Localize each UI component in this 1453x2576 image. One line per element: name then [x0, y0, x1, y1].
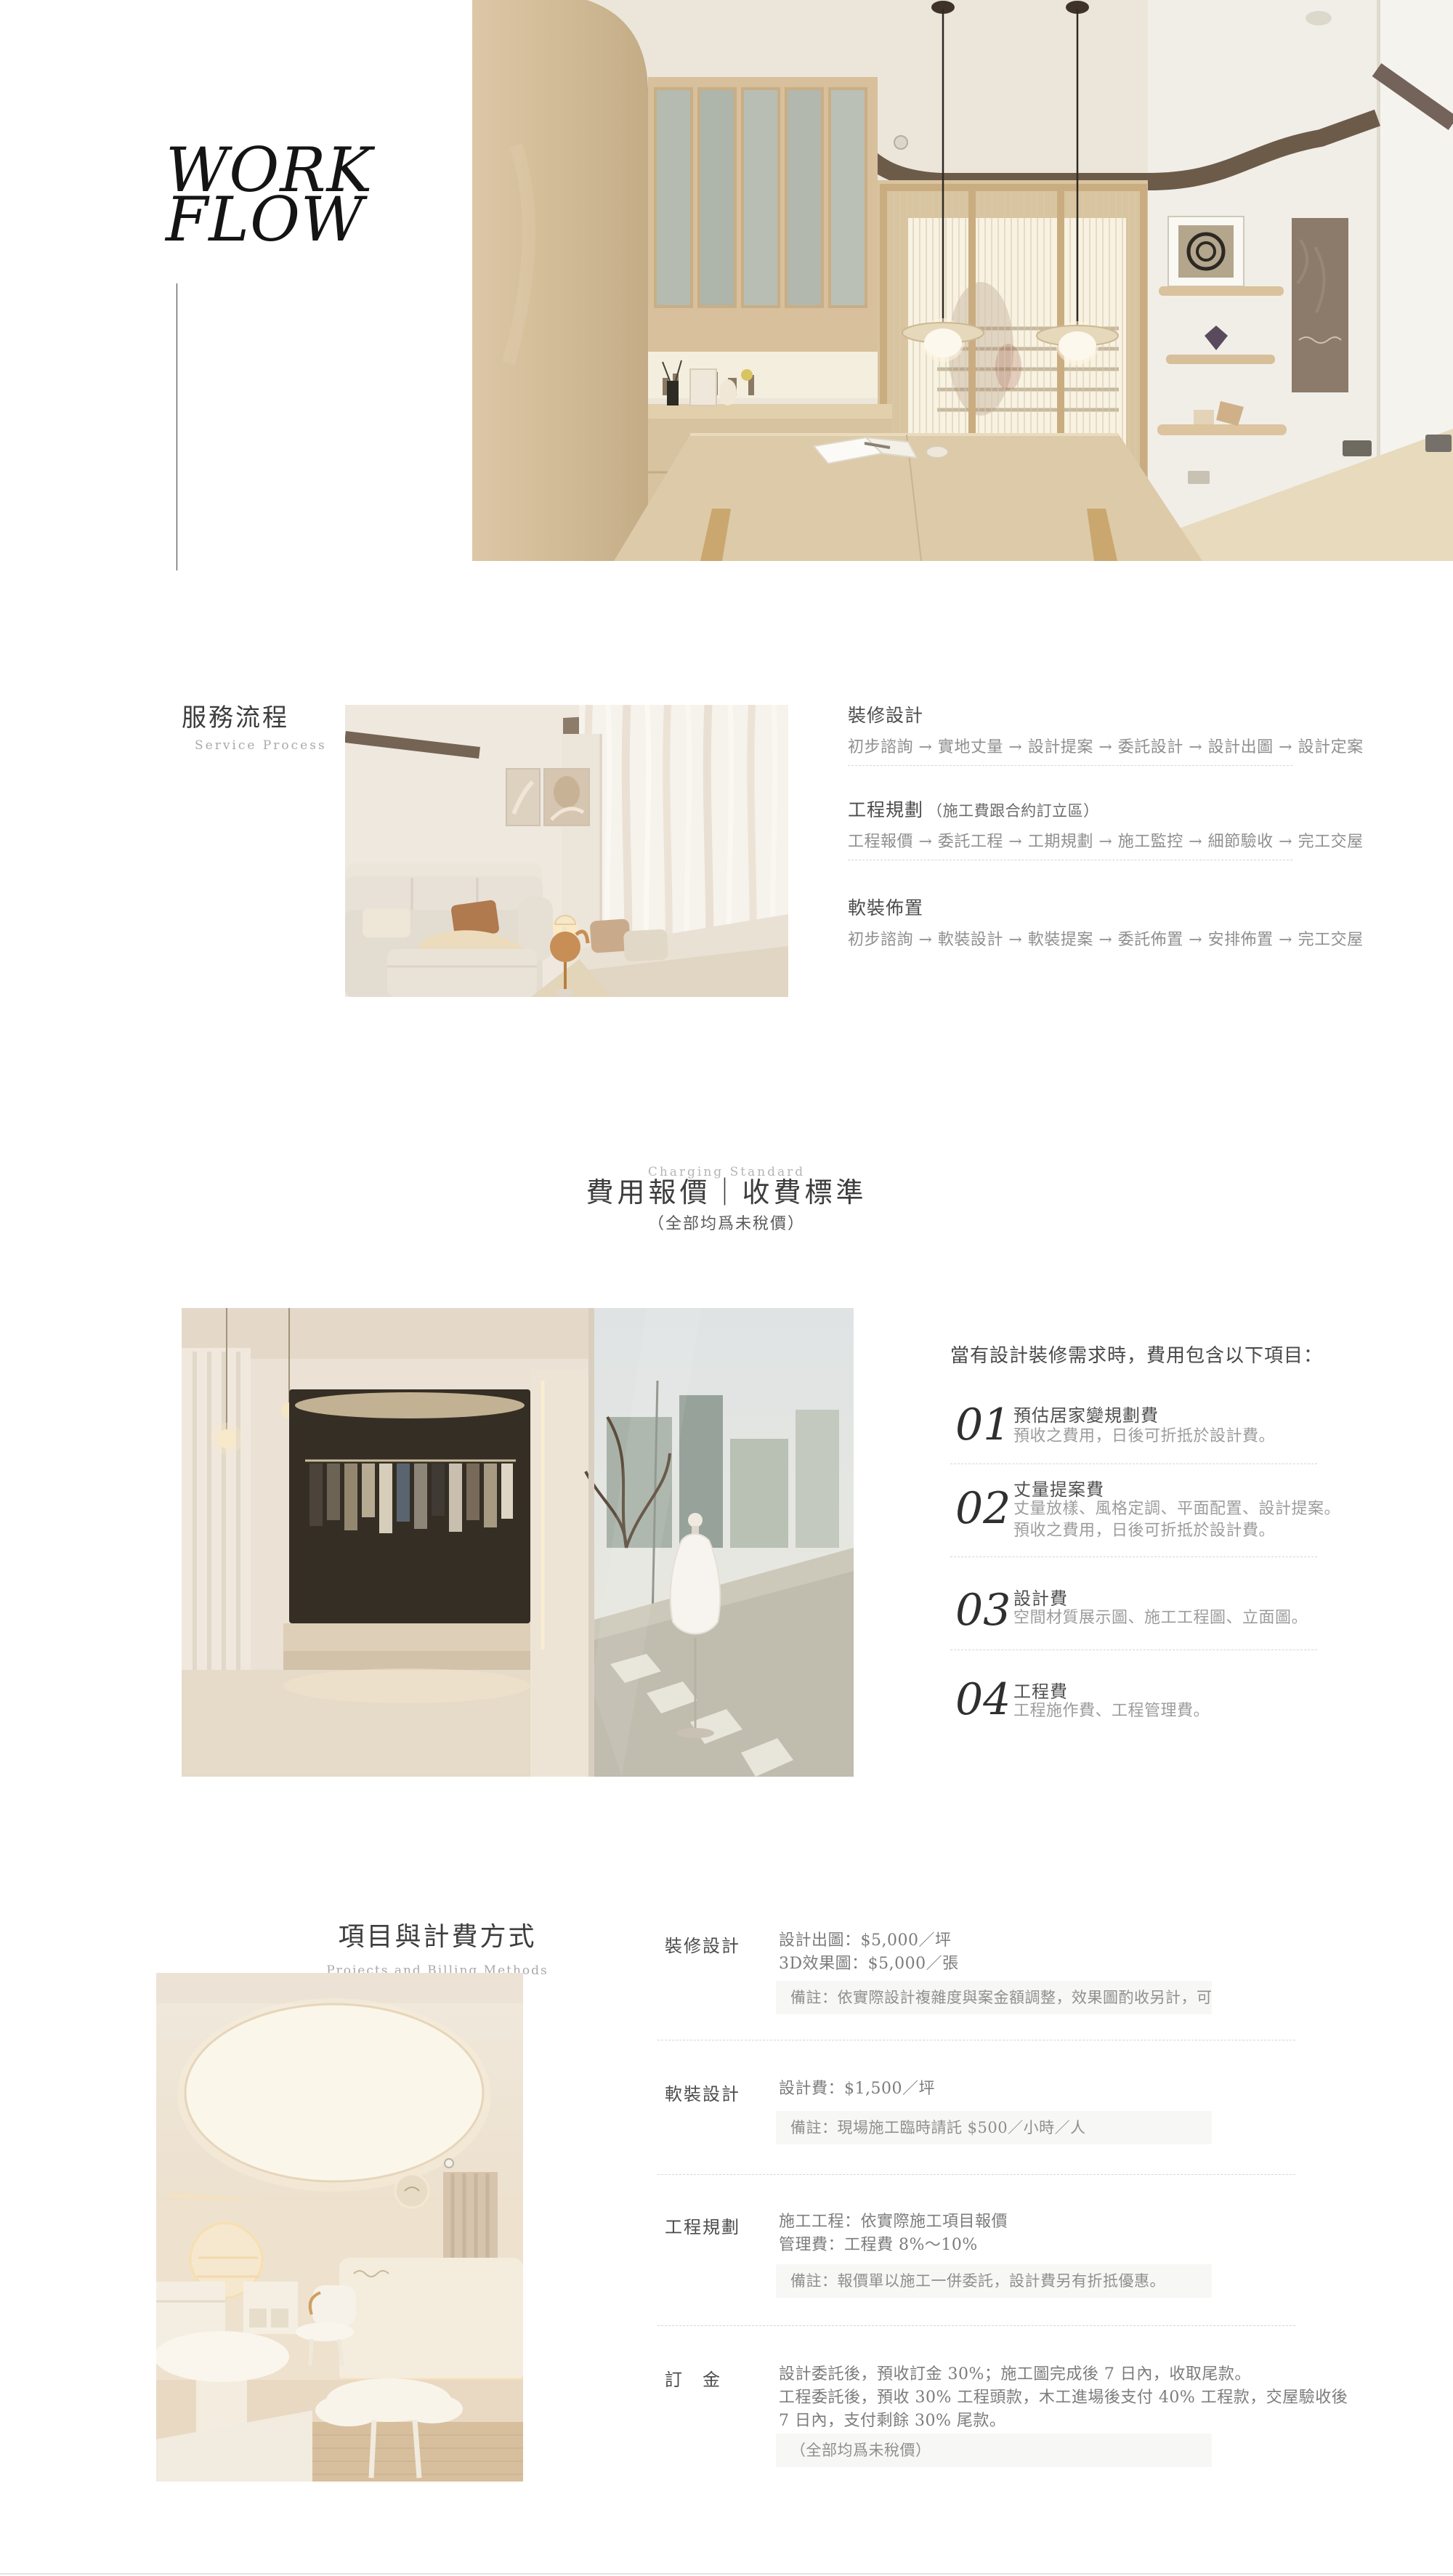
hero-photo: [472, 0, 1453, 561]
billing-title: 項目與計費方式: [256, 1915, 619, 1953]
service-process-photo: [345, 705, 788, 997]
billing-row-line: 設計費：$1,500／坪: [779, 2078, 935, 2100]
fee-item-desc: 丈量放樣、風格定調、平面配置、設計提案。: [1013, 1498, 1340, 1520]
boutique-photo: [182, 1308, 854, 1777]
billing-row-line: 設計委託後，預收訂金 30%；施工圖完成後 7 日內，收取尾款。: [779, 2364, 1251, 2386]
billing-row-line: 7 日內，支付剩餘 30% 尾款。: [779, 2410, 1005, 2432]
fee-item-number: 01: [955, 1402, 1011, 1448]
billing-row-note: （全部均爲未稅價）: [776, 2434, 1212, 2467]
flow-steps: 初步諮詢 → 實地丈量 → 設計提案 → 委託設計 → 設計出圖 → 設計定案: [848, 734, 1298, 757]
billing-photo: [156, 1973, 523, 2482]
billing-row-label: 訂 金: [665, 2365, 721, 2391]
fee-item-desc: 工程施作費、工程管理費。: [1013, 1700, 1210, 1722]
flow-item-soft-furnishing: 軟裝佈置 初步諮詢 → 軟裝設計 → 軟裝提案 → 委託佈置 → 安排佈置 → …: [848, 894, 1298, 950]
billing-header: 項目與計費方式 Projects and Billing Methods: [256, 1915, 619, 1978]
flow-title-note: （施工費跟合約訂立區）: [927, 802, 1099, 820]
billing-row-note: 備註：現場施工臨時請託 $500／小時／人: [776, 2111, 1212, 2144]
fee-item-title: 預估居家變規劃費: [1013, 1401, 1159, 1426]
fee-item-title: 丈量提案費: [1013, 1475, 1104, 1501]
billing-row-label: 裝修設計: [665, 1931, 740, 1957]
vertical-rule: [177, 283, 177, 570]
page-title: WORK FLOW: [166, 145, 373, 244]
fee-item-title: 工程費: [1013, 1677, 1068, 1703]
fee-item-number: 04: [955, 1677, 1011, 1722]
billing-row-label: 工程規劃: [665, 2213, 740, 2238]
billing-row-label: 軟裝設計: [665, 2080, 740, 2105]
billing-row-line: 管理費：工程費 8%～10%: [779, 2234, 978, 2256]
fee-item-number: 03: [955, 1588, 1011, 1633]
flow-title: 工程規劃: [848, 799, 923, 820]
fee-items-heading: 當有設計裝修需求時，費用包含以下項目：: [950, 1341, 1323, 1368]
billing-row-line: 工程委託後，預收 30% 工程頭款，木工進場後支付 40% 工程款，交屋驗收後: [779, 2387, 1348, 2409]
billing-row-note: 備註：報價單以施工一併委託，設計費另有折抵優惠。: [776, 2264, 1212, 2298]
living-room-illustration: [345, 705, 788, 997]
flow-steps: 初步諮詢 → 軟裝設計 → 軟裝提案 → 委託佈置 → 安排佈置 → 完工交屋: [848, 926, 1298, 950]
billing-divider: [657, 2325, 1295, 2326]
page-bottom-rule: [0, 2573, 1453, 2575]
charging-standard-title: 費用報價｜收費標準: [0, 1176, 1453, 1208]
flow-divider: [848, 860, 1292, 860]
fee-divider: [950, 1650, 1317, 1650]
service-process-subtitle: Service Process: [195, 738, 327, 753]
billing-row-line: 3D效果圖：$5,000／張: [779, 1953, 959, 1975]
flow-title: 裝修設計: [848, 701, 1298, 727]
fee-divider: [950, 1463, 1317, 1464]
billing-divider: [657, 2040, 1295, 2040]
service-process-title: 服務流程: [182, 698, 289, 733]
flow-steps: 工程報價 → 委託工程 → 工期規劃 → 施工監控 → 細節驗收 → 完工交屋: [848, 828, 1298, 852]
fee-divider: [950, 1556, 1317, 1557]
page-title-line2: FLOW: [166, 195, 373, 244]
hero-photo-illustration: [472, 0, 1453, 561]
flow-item-renovation-design: 裝修設計 初步諮詢 → 實地丈量 → 設計提案 → 委託設計 → 設計出圖 → …: [848, 701, 1298, 757]
fee-item-desc: 空間材質展示圖、施工工程圖、立面圖。: [1013, 1607, 1308, 1629]
flow-title: 軟裝佈置: [848, 894, 1298, 920]
studio-illustration: [156, 1973, 523, 2482]
fee-item-desc: 預收之費用，日後可折抵於設計費。: [1013, 1426, 1275, 1448]
flow-divider: [848, 765, 1292, 766]
boutique-illustration: [182, 1308, 854, 1777]
billing-row-note: 備註：依實際設計複雜度與案金額調整，效果圖酌收另計，可免費修改一次。: [776, 1981, 1212, 2014]
billing-row-line: 施工工程：依實際施工項目報價: [779, 2211, 1008, 2233]
billing-divider: [657, 2174, 1295, 2175]
fee-item-desc: 預收之費用，日後可折抵於設計費。: [1013, 1520, 1275, 1542]
workflow-page: WORK FLOW: [0, 0, 1453, 2576]
fee-item-title: 設計費: [1013, 1584, 1068, 1610]
billing-row-line: 設計出圖：$5,000／坪: [779, 1930, 951, 1952]
flow-item-engineering-planning: 工程規劃 （施工費跟合約訂立區） 工程報價 → 委託工程 → 工期規劃 → 施工…: [848, 796, 1298, 852]
charging-standard-subtitle: （全部均爲未稅價）: [0, 1211, 1453, 1234]
fee-item-number: 02: [955, 1486, 1011, 1531]
